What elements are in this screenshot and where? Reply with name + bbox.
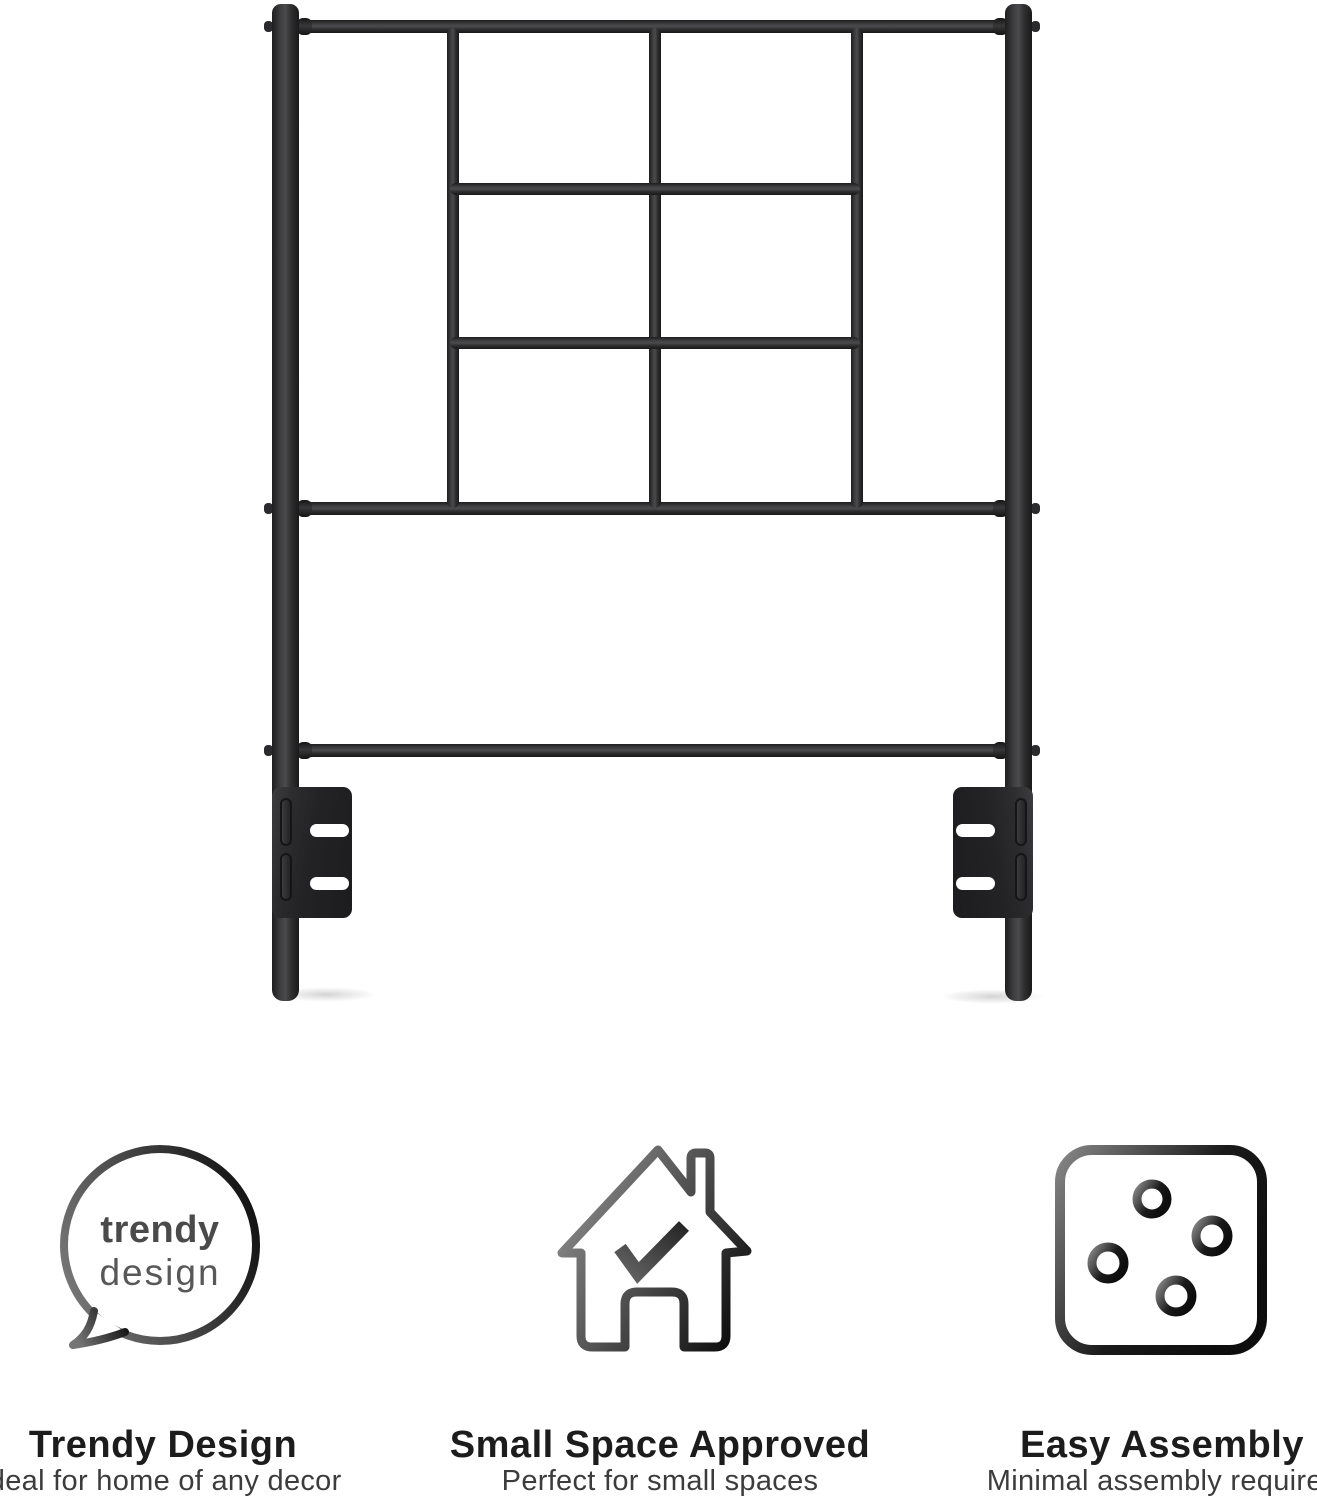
feature-title-easy-assembly: Easy Assembly xyxy=(1020,1426,1304,1464)
feature-subtitle-trendy-design: Ideal for home of any decor xyxy=(0,1466,342,1496)
house-check-icon xyxy=(555,1140,755,1355)
set-screw-nub xyxy=(1031,21,1040,32)
rail-collar xyxy=(297,500,312,517)
product-image: trendy design Trendy Design xyxy=(0,0,1317,1500)
puzzle-icon xyxy=(1055,1145,1267,1355)
feature-subtitle-easy-assembly: Minimal assembly required xyxy=(987,1466,1317,1496)
rail-collar xyxy=(297,18,312,35)
set-screw-nub xyxy=(1031,745,1040,756)
bubble-text-design: design xyxy=(99,1252,220,1294)
feature-subtitle-small-space: Perfect for small spaces xyxy=(502,1466,819,1496)
headboard-lower-rail xyxy=(297,744,1008,757)
bracket-vertical-slot xyxy=(1015,798,1027,846)
right-foot-shadow xyxy=(927,987,1059,1006)
bracket-vertical-slot xyxy=(280,853,292,901)
bracket-bolt-slot xyxy=(310,824,349,837)
grid-horizontal-bar xyxy=(450,183,860,195)
feature-title-small-space-approved: Small Space Approved xyxy=(450,1426,870,1464)
feature-title-trendy-design: Trendy Design xyxy=(29,1426,297,1464)
bracket-vertical-slot xyxy=(1015,853,1027,901)
grid-horizontal-bar xyxy=(450,337,860,349)
bracket-vertical-slot xyxy=(280,798,292,846)
bracket-bolt-slot xyxy=(956,877,995,890)
grid-vertical-bar xyxy=(851,28,863,508)
bracket-bolt-slot xyxy=(956,824,995,837)
rail-collar xyxy=(297,742,312,759)
set-screw-nub xyxy=(1031,503,1040,514)
grid-vertical-bar xyxy=(649,28,661,508)
bubble-text-trendy: trendy xyxy=(100,1209,219,1252)
grid-vertical-bar xyxy=(447,28,459,508)
bracket-bolt-slot xyxy=(310,877,349,890)
